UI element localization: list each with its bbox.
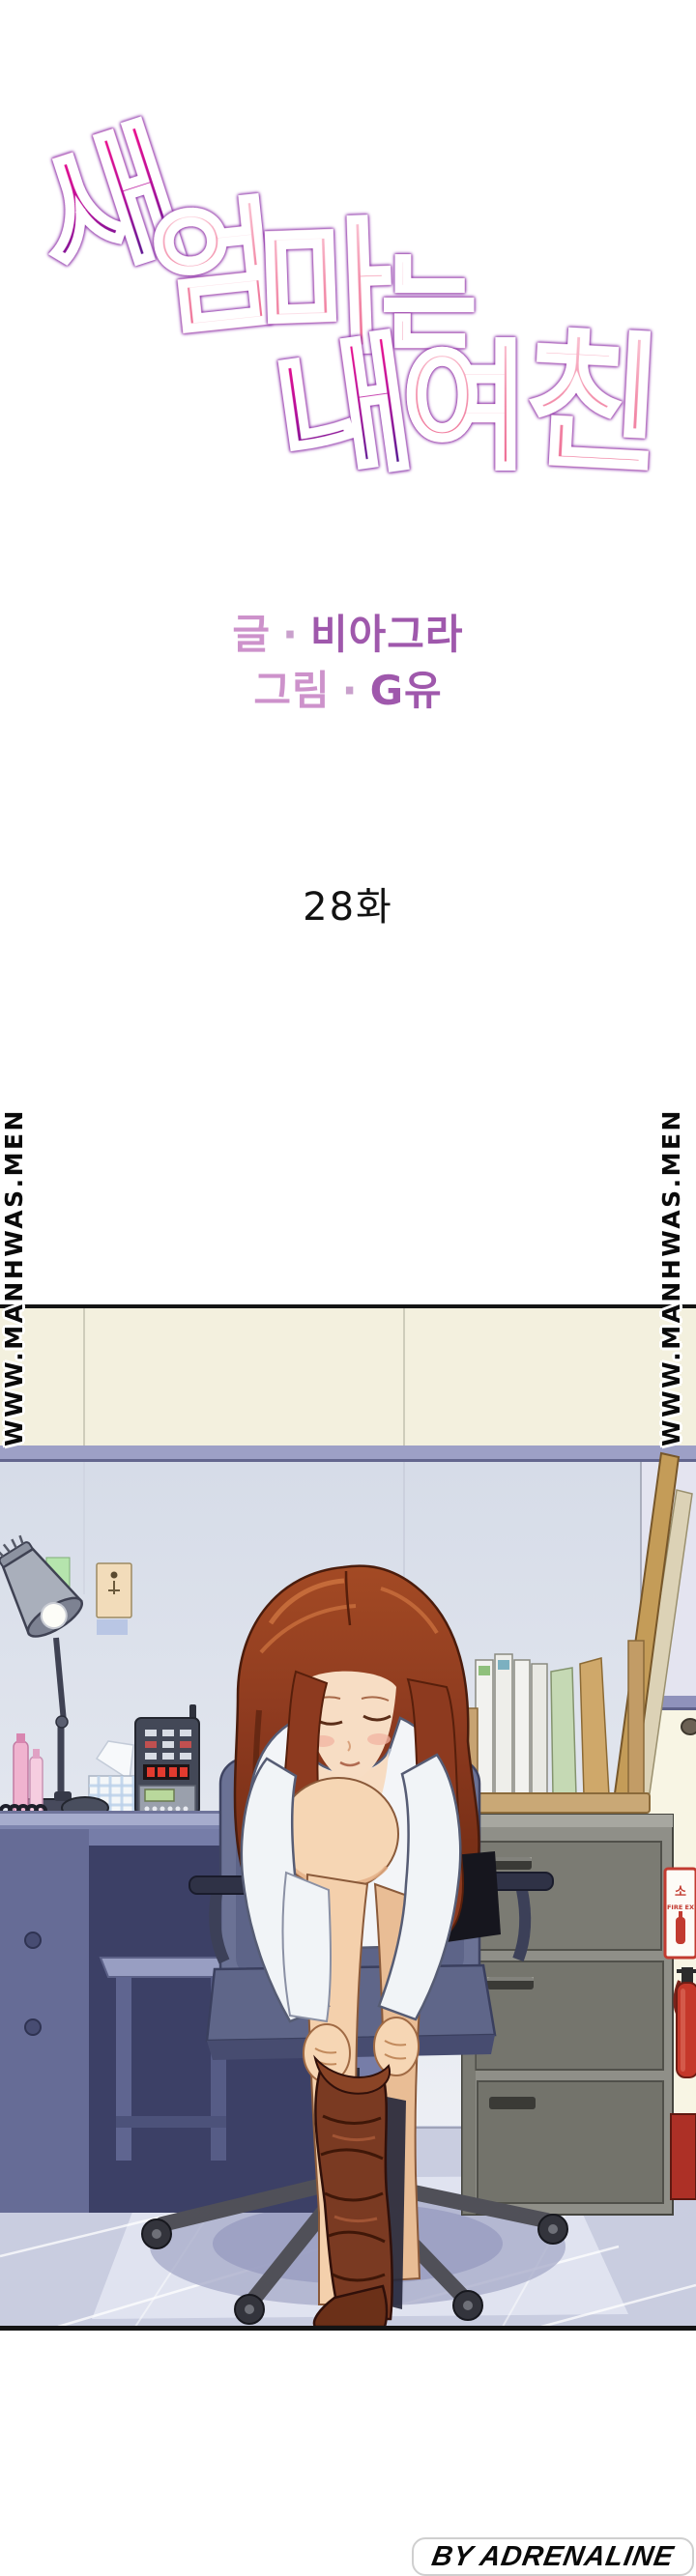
artist-label: 그림 (253, 667, 330, 714)
pinned-memo (97, 1563, 131, 1635)
manhwa-episode-page: 새 엄 마 는 내 여 친 글·비아그라 그림·G유 28화 WWW.MANHW… (0, 0, 696, 2576)
writer-credit-line: 글·비아그라 (0, 607, 696, 663)
episode-number: 28화 (0, 875, 696, 931)
shirt-tail (283, 1873, 331, 2021)
title-char: 여 (402, 340, 529, 477)
credit-separator: · (331, 667, 370, 714)
credit-separator: · (271, 611, 310, 658)
scanlation-credit-badge: BY ADRENALINE (412, 2537, 694, 2576)
author-credits: 글·비아그라 그림·G유 (0, 607, 696, 719)
artist-credit-line: 그림·G유 (0, 663, 696, 719)
fire-sign-english: FIRE EX (667, 1903, 694, 1911)
fire-sign-korean: 소 (675, 1885, 686, 1900)
panel-border-top (0, 1304, 696, 1308)
panel-border-bottom (0, 2326, 696, 2331)
scanlation-credit-text: BY ADRENALINE (429, 2541, 677, 2573)
watermark-right: WWW.MANHWAS.MEN (657, 1070, 696, 1485)
desk-phone (135, 1704, 199, 1815)
watermark-left: WWW.MANHWAS.MEN (0, 1070, 39, 1485)
writer-label: 글 (232, 611, 271, 658)
binders (476, 1654, 609, 1795)
door-knob (681, 1719, 696, 1734)
writer-name: 비아그라 (310, 611, 464, 658)
comic-panel: 소 FIRE EX (0, 1304, 696, 2331)
artist-name: G유 (370, 667, 443, 714)
title-char: 내 (267, 329, 421, 494)
title-char: 친 (522, 327, 665, 480)
fire-extinguisher-sign: 소 FIRE EX (665, 1869, 696, 1958)
